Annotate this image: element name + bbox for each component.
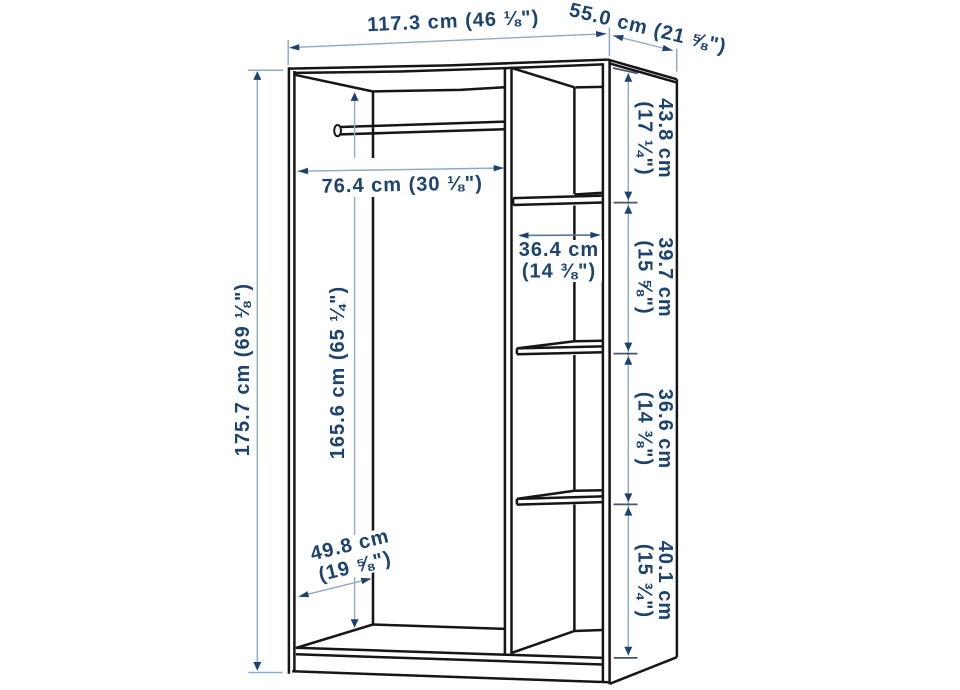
svg-text:(15 ⅝"): (15 ⅝")	[634, 240, 656, 314]
svg-text:36.4 cm: 36.4 cm	[519, 239, 599, 261]
svg-text:36.6 cm: 36.6 cm	[654, 389, 676, 469]
svg-text:(14 ⅜"): (14 ⅜")	[634, 392, 656, 466]
svg-text:165.6 cm (65 ¼"): 165.6 cm (65 ¼")	[327, 286, 349, 459]
svg-text:117.3 cm (46 ⅛"): 117.3 cm (46 ⅛")	[367, 7, 540, 36]
svg-text:(15 ¾"): (15 ¾")	[634, 544, 656, 618]
svg-text:39.7 cm: 39.7 cm	[654, 237, 676, 317]
svg-text:(17 ¼"): (17 ¼")	[634, 101, 656, 175]
svg-text:(14 ⅜"): (14 ⅜")	[522, 261, 596, 283]
svg-text:40.1 cm: 40.1 cm	[654, 541, 676, 621]
svg-text:43.8 cm: 43.8 cm	[654, 98, 676, 178]
svg-text:76.4 cm (30 ⅛"): 76.4 cm (30 ⅛")	[321, 172, 483, 197]
svg-text:175.7 cm (69 ⅛"): 175.7 cm (69 ⅛")	[232, 283, 254, 456]
svg-text:55.0 cm (21 ⅝"): 55.0 cm (21 ⅝")	[567, 0, 729, 58]
